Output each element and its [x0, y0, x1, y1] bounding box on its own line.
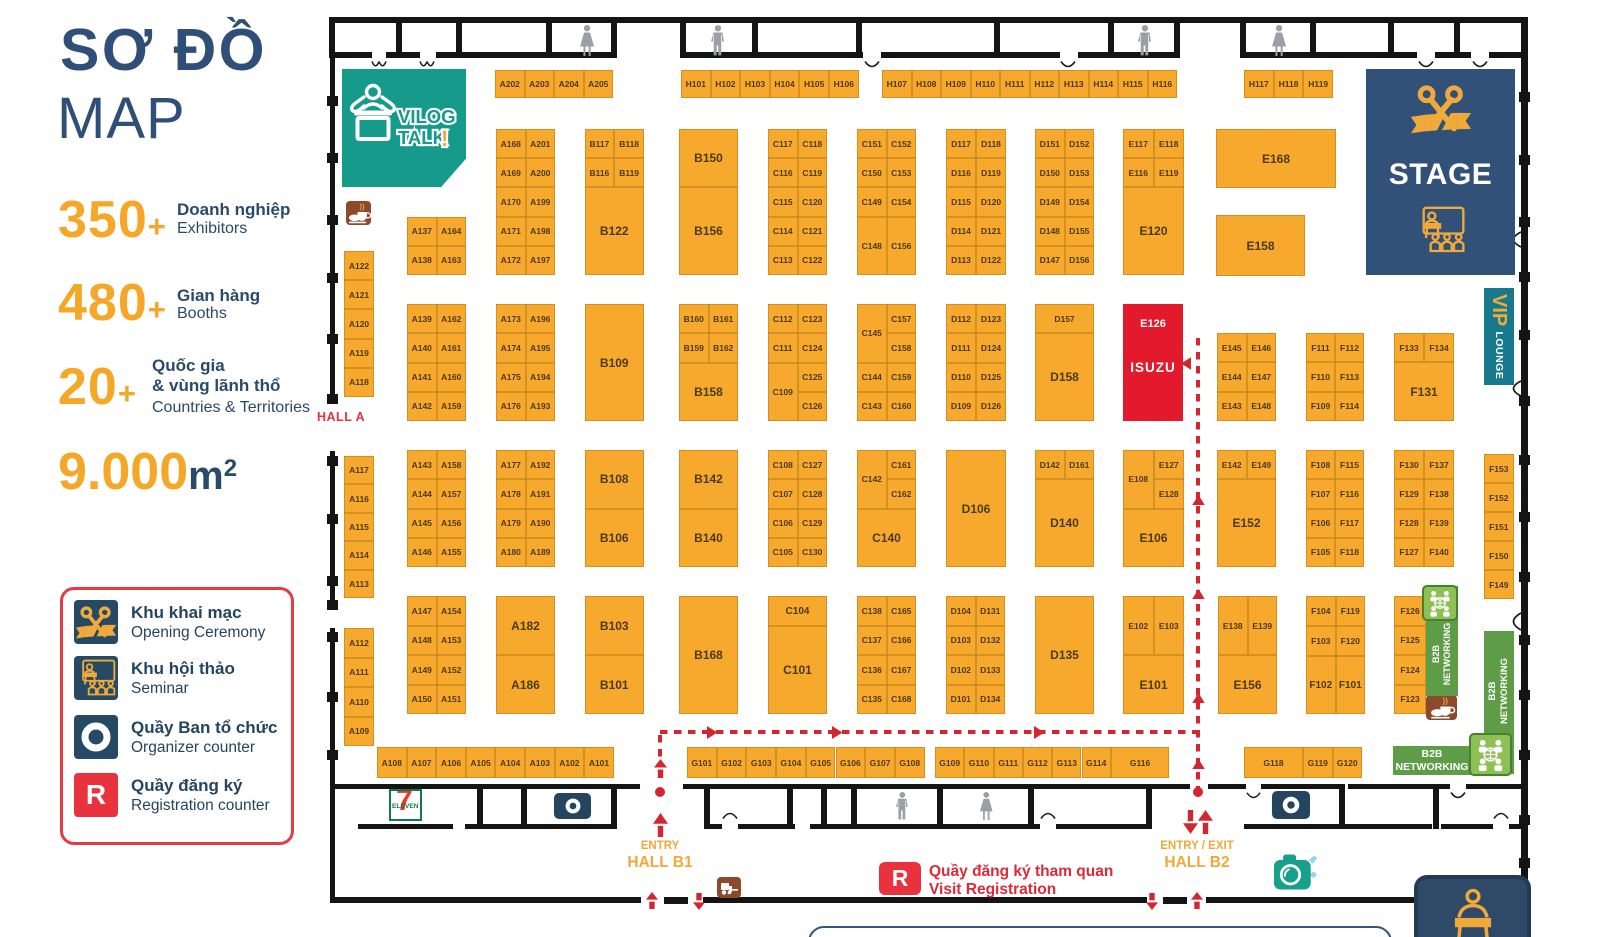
svg-text:TALK: TALK — [398, 127, 447, 148]
svg-text:)): )) — [359, 202, 365, 211]
svg-text:!: ! — [441, 126, 448, 151]
svg-text:VILOG: VILOG — [398, 106, 456, 127]
svg-text:)): )) — [1443, 695, 1449, 705]
